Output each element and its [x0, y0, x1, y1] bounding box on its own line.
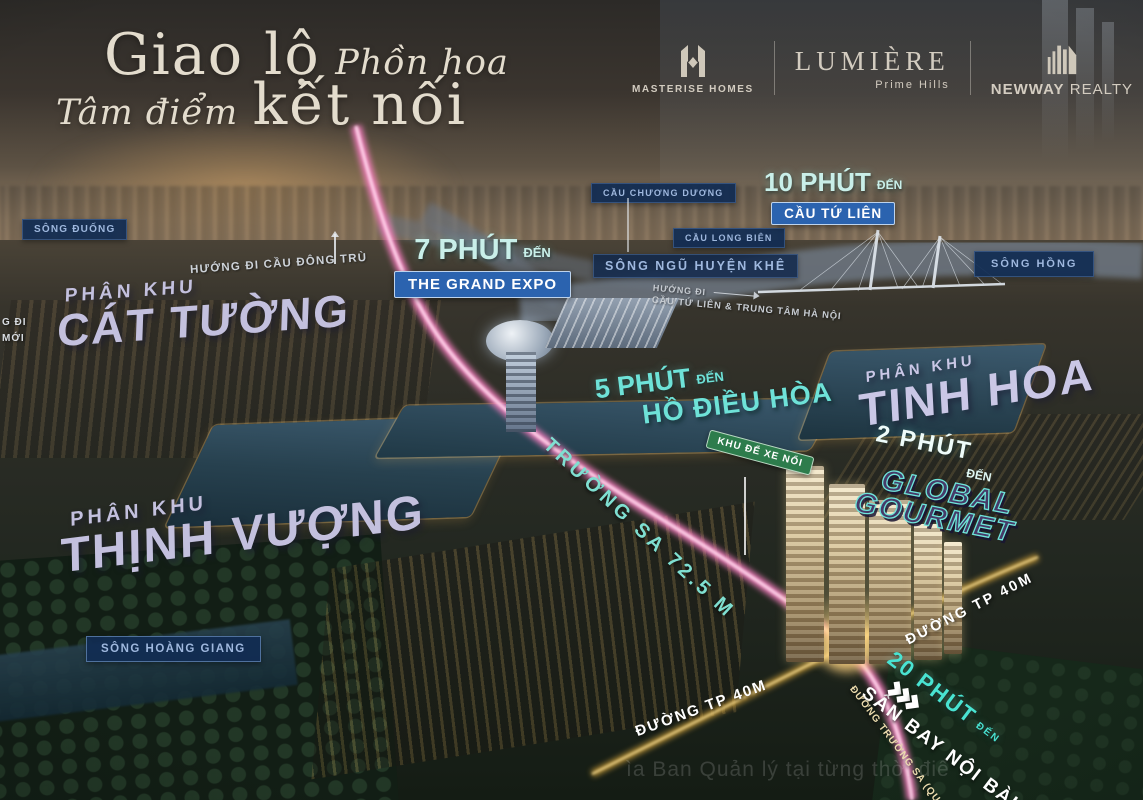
lumiere-logo: LUMIÈRE Prime Hills	[795, 46, 950, 91]
brand-logos: MASTERISE HOMES LUMIÈRE Prime Hills NEWW…	[632, 38, 1133, 98]
newway-label: NEWWAY REALTY	[991, 81, 1133, 98]
callout-time: 7 PHÚTĐẾN	[414, 234, 551, 267]
callout-time: 10 PHÚTĐẾN	[764, 167, 902, 198]
poster-title: Giao lộ Phồn hoa Tâm điểm kết nối	[56, 22, 509, 138]
right-arrow-icon	[714, 292, 758, 297]
up-arrow-icon	[334, 234, 336, 264]
masterise-label: MASTERISE HOMES	[632, 84, 754, 95]
lumiere-sublabel: Prime Hills	[875, 79, 950, 91]
highrise-tower	[944, 542, 962, 654]
brand-divider	[970, 41, 971, 95]
masterplan-poster: Giao lộ Phồn hoa Tâm điểm kết nối MASTER…	[0, 0, 1143, 800]
chevron-arrow-icon	[904, 695, 919, 710]
edge-direction-fragment: G ĐI MỚI	[2, 315, 27, 347]
expo-tower-building	[506, 352, 536, 432]
destination-badge: CẦU TỨ LIÊN	[771, 202, 895, 225]
destination-badge: THE GRAND EXPO	[394, 271, 571, 298]
title-script-2: Tâm điểm	[56, 93, 238, 133]
brand-divider	[774, 41, 775, 95]
newway-building-icon	[1045, 38, 1079, 76]
sign-song-hoang-giang: SÔNG HOÀNG GIANG	[86, 636, 261, 662]
masterise-m-icon	[678, 42, 708, 78]
sign-song-hong: SÔNG HỒNG	[974, 251, 1094, 277]
sign-cau-chuong-duong: CẦU CHƯƠNG DƯƠNG	[591, 183, 736, 203]
sign-connector-line	[627, 198, 629, 252]
sign-pointer-line	[744, 477, 746, 555]
sign-cau-long-bien: CẦU LONG BIÊN	[673, 228, 785, 248]
callout-grand-expo: 7 PHÚTĐẾN THE GRAND EXPO	[394, 234, 571, 298]
newway-logo: NEWWAY REALTY	[991, 38, 1133, 98]
masterise-logo: MASTERISE HOMES	[632, 42, 754, 95]
callout-cau-tu-lien: 10 PHÚTĐẾN CẦU TỨ LIÊN	[764, 167, 902, 225]
lumiere-label: LUMIÈRE	[795, 46, 950, 77]
sign-song-duong: SÔNG ĐUỐNG	[22, 219, 127, 240]
highrise-tower	[786, 466, 824, 662]
sign-song-ngu-huyen-khe: SÔNG NGŨ HUYỆN KHÊ	[593, 254, 798, 278]
watermark-text: ìa Ban Quản lý tại từng thời điể	[626, 758, 950, 782]
title-serif-2: kết nối	[253, 72, 467, 138]
